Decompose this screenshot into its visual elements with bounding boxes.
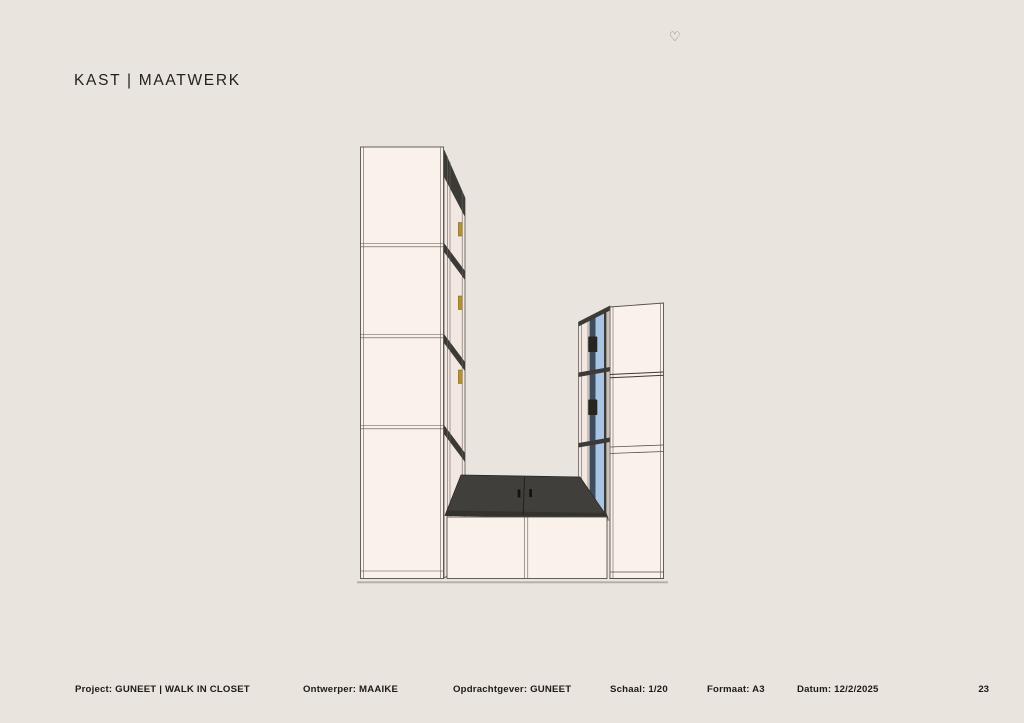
right-side-dark-strip <box>604 309 607 520</box>
footer-project: Project: GUNEET | WALK IN CLOSET <box>75 684 250 695</box>
footer-ontwerper: Ontwerper: MAAIKE <box>303 684 398 695</box>
bench-handle-icon <box>529 489 532 497</box>
bench-front-panel <box>447 517 607 579</box>
hinge-block-icon <box>588 337 597 353</box>
hinge-icon <box>458 223 462 237</box>
document-page: KAST | MAATWERK ♡ <box>0 0 1024 723</box>
footer-datum: Datum: 12/2/2025 <box>797 684 879 695</box>
right-front-panel <box>610 303 664 579</box>
bench-handle-icon <box>518 490 521 498</box>
right-wardrobe-front <box>610 303 664 579</box>
left-front-panel <box>361 147 444 579</box>
hinge-icon <box>458 296 462 310</box>
footer-opdrachtgever: Opdrachtgever: GUNEET <box>453 684 571 695</box>
footer-formaat: Formaat: A3 <box>707 684 765 695</box>
left-wardrobe-front <box>361 147 444 579</box>
cabinet-drawing <box>0 0 1024 723</box>
page-number: 23 <box>978 684 989 695</box>
bench <box>445 475 608 579</box>
footer-schaal: Schaal: 1/20 <box>610 684 668 695</box>
hinge-block-icon <box>588 400 597 416</box>
hinge-icon <box>458 370 462 384</box>
